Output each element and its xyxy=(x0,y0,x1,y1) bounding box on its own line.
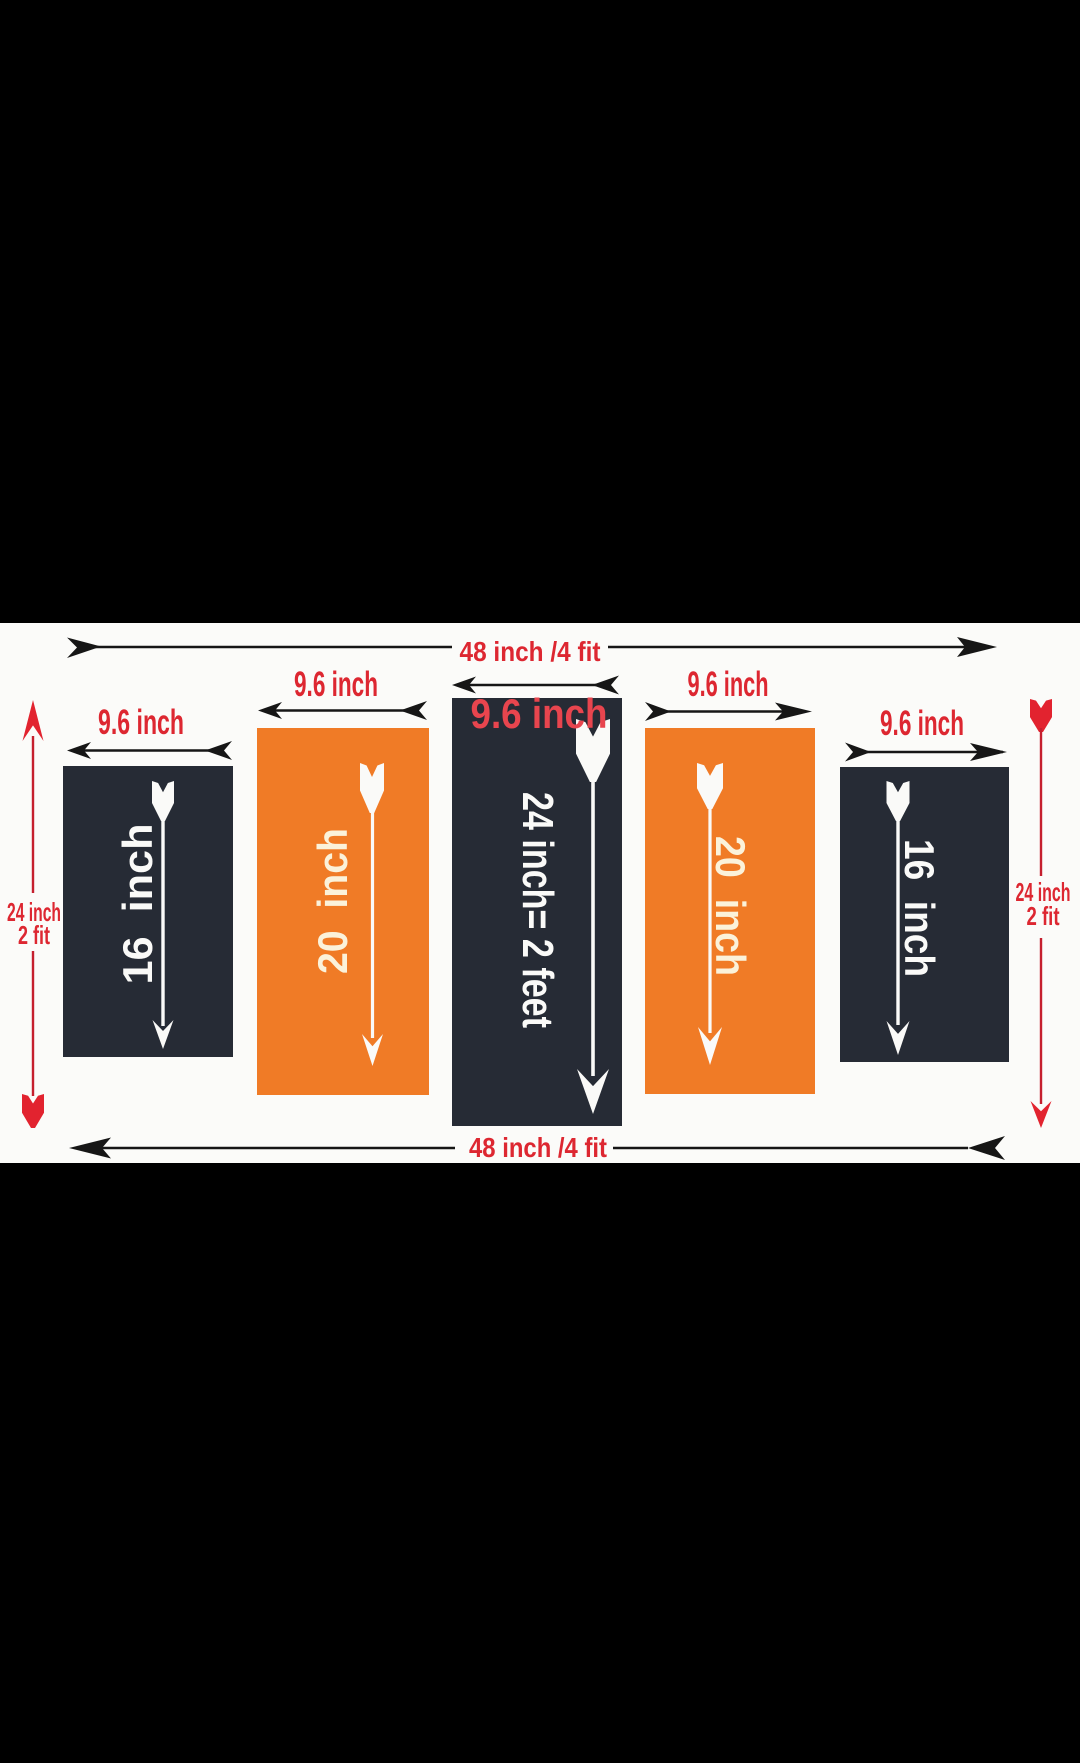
svg-text:9.6 inch: 9.6 inch xyxy=(294,665,378,704)
svg-text:16 inch: 16 inch xyxy=(896,839,943,977)
svg-text:2 fit: 2 fit xyxy=(1027,901,1060,931)
svg-text:9.6 inch: 9.6 inch xyxy=(98,703,184,742)
svg-text:20 inch: 20 inch xyxy=(309,828,356,974)
svg-text:48 inch /4 fit: 48 inch /4 fit xyxy=(469,1132,607,1163)
svg-text:48 inch /4 fit: 48 inch /4 fit xyxy=(460,636,601,667)
svg-text:9.6 inch: 9.6 inch xyxy=(688,665,769,704)
svg-text:20 inch: 20 inch xyxy=(707,836,754,976)
svg-text:16 inch: 16 inch xyxy=(114,824,161,985)
svg-text:9.6 inch: 9.6 inch xyxy=(880,704,964,743)
svg-text:2 fit: 2 fit xyxy=(18,920,50,950)
svg-text:9.6 inch: 9.6 inch xyxy=(471,690,608,737)
svg-text:24 inch= 2 feet: 24 inch= 2 feet xyxy=(513,792,562,1028)
